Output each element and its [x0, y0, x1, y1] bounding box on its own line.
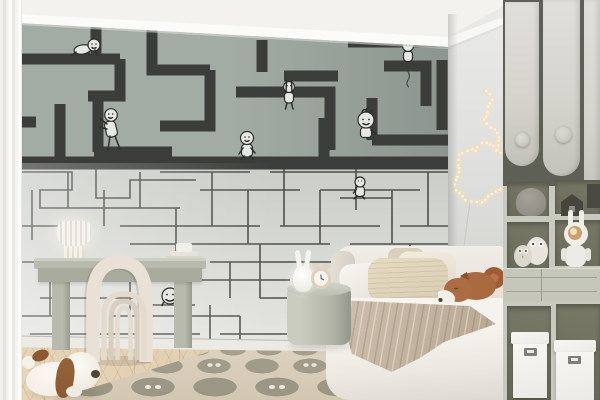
arch-chair [0, 0, 600, 400]
dog-paw [66, 386, 82, 397]
dog-nose [91, 370, 100, 378]
sheer-curtain [0, 0, 22, 400]
room-photo [0, 0, 600, 400]
